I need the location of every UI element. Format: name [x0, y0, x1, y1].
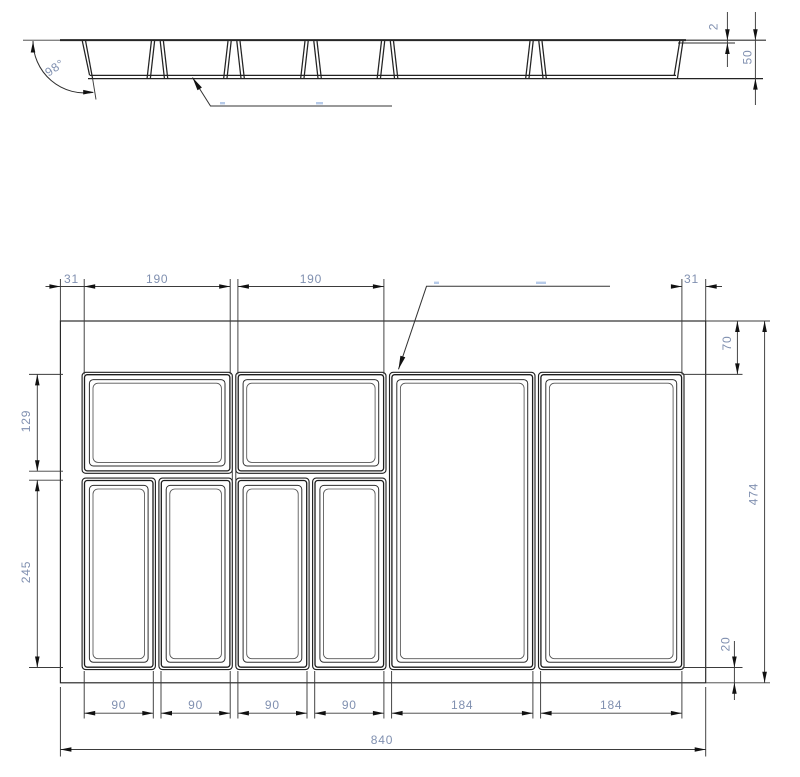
svg-text:190: 190: [300, 272, 322, 286]
svg-text:474: 474: [747, 483, 761, 505]
svg-text:90: 90: [188, 698, 203, 712]
svg-text:70: 70: [720, 336, 734, 351]
svg-text:129: 129: [19, 410, 33, 432]
svg-text:20: 20: [719, 637, 733, 652]
svg-text:184: 184: [451, 698, 473, 712]
svg-text:184: 184: [600, 698, 622, 712]
svg-text:50: 50: [741, 50, 755, 65]
svg-text:90: 90: [265, 698, 280, 712]
svg-text:31: 31: [64, 272, 79, 286]
svg-text:190: 190: [146, 272, 168, 286]
svg-text:90: 90: [111, 698, 126, 712]
svg-text:90: 90: [342, 698, 357, 712]
svg-text:840: 840: [371, 733, 393, 747]
svg-text:245: 245: [19, 561, 33, 583]
svg-text:31: 31: [684, 272, 699, 286]
svg-text:2: 2: [707, 23, 721, 30]
